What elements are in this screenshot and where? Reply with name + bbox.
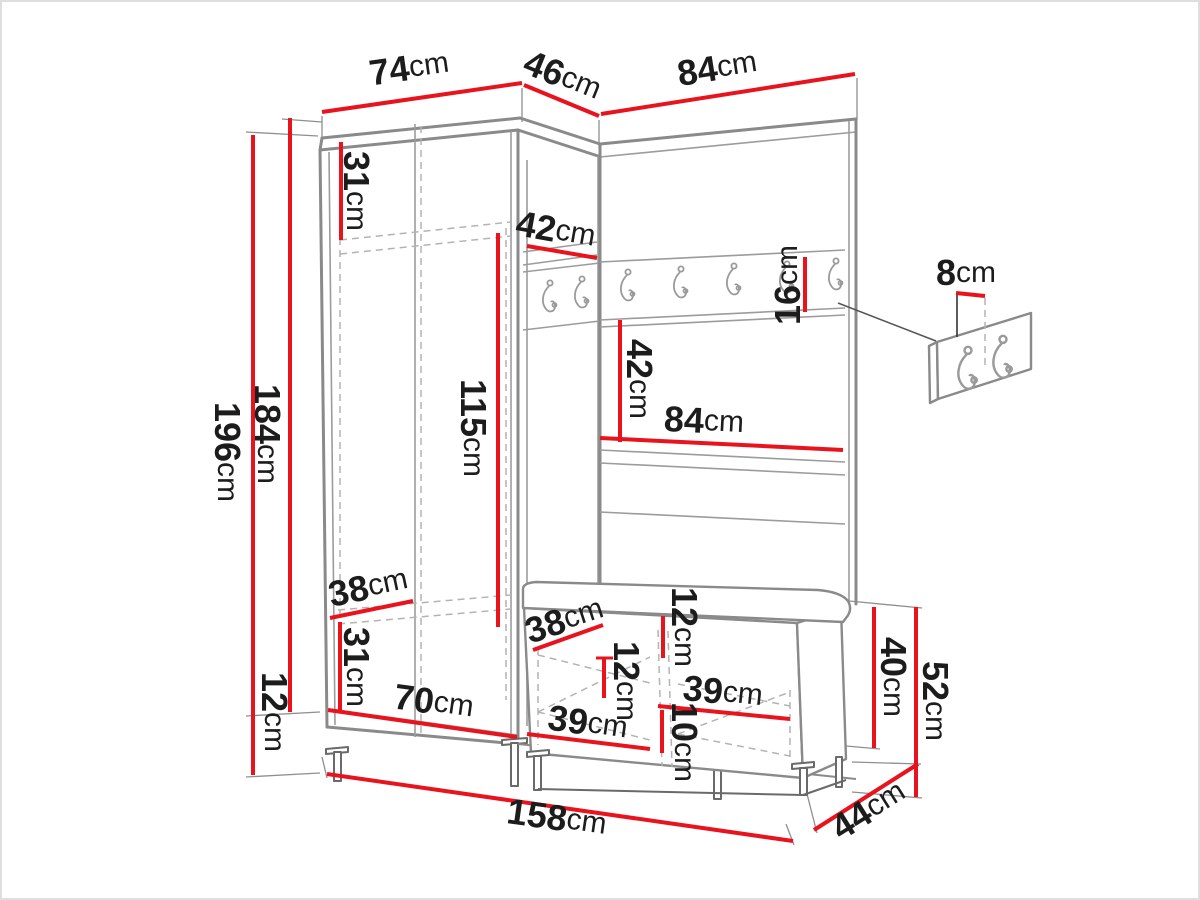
- coat-hook-icon: [621, 269, 635, 300]
- coat-hook-icon: [575, 276, 589, 307]
- dim-label-panel-rail-to-shelf: 42cm: [620, 339, 661, 419]
- dim-label-bench-body-height: 40cm: [874, 637, 915, 717]
- dim-label-bench-total-height: 52cm: [916, 661, 957, 741]
- hook-rail: [600, 250, 845, 327]
- furniture-dimension-diagram: 74cm 46cm 84cm 31cm 42cm 16cm 42cm 84cm …: [0, 0, 1200, 900]
- dim-label-hook-rail-height: 16cm: [767, 245, 808, 325]
- dim-label-wardrobe-interior-height: 115cm: [454, 379, 495, 477]
- coat-hook-icon: [543, 280, 557, 311]
- detail-pointer-line: [838, 303, 936, 341]
- bench-side-face: [797, 609, 846, 778]
- detail-panel: [937, 313, 1031, 399]
- dim-line-panel-shelf-width: [600, 438, 843, 450]
- dim-label-carcass-height: 184cm: [248, 384, 289, 484]
- dim-line-wardrobe-top-width: [322, 83, 522, 112]
- dim-label-bench-leg-height: 10cm: [665, 702, 706, 782]
- coat-hook-icon: [727, 263, 741, 294]
- dim-label-total-width: 158cm: [505, 790, 610, 845]
- dim-label-wardrobe-top-section: 31cm: [337, 151, 378, 231]
- dim-label-panel-shelf-width: 84cm: [663, 397, 745, 442]
- dim-label-total-height: 196cm: [208, 402, 249, 502]
- dim-label-corner-top-width: 46cm: [518, 41, 608, 109]
- dim-label-wardrobe-bottom-section: 31cm: [337, 627, 378, 707]
- panel-shelf: [600, 450, 845, 462]
- hook-panel-detail: [838, 295, 1031, 403]
- dim-label-bench-cushion-height: 12cm: [665, 587, 706, 667]
- dim-label-leg-height: 12cm: [255, 672, 296, 752]
- dim-label-wardrobe-top-width: 74cm: [367, 41, 452, 93]
- dim-label-hook-spacing: 8cm: [936, 252, 996, 293]
- coat-hook-icon: [829, 258, 843, 289]
- diagram-canvas: 74cm 46cm 84cm 31cm 42cm 16cm 42cm 84cm …: [0, 0, 1200, 900]
- dim-line-hook-spacing: [956, 293, 985, 296]
- coat-hook-icon: [674, 266, 688, 297]
- dim-label-panel-top-width: 84cm: [674, 40, 759, 93]
